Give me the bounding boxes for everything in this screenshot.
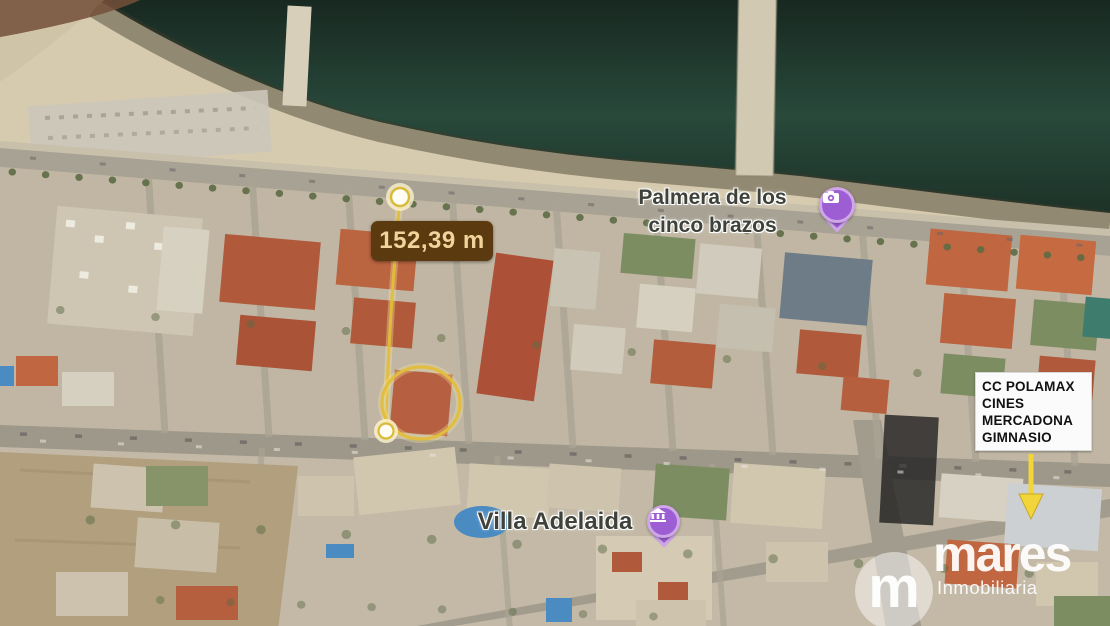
distance-value: 152,39 m xyxy=(379,227,484,255)
watermark-monogram: m xyxy=(868,559,920,617)
historic-building-icon xyxy=(650,508,666,522)
watermark-logo-circle: m xyxy=(855,552,933,626)
camera-icon xyxy=(822,190,840,204)
landmark-pin[interactable] xyxy=(647,505,680,538)
map-canvas[interactable]: 152,39 m Palmera de los cinco brazos Vil… xyxy=(0,0,1110,626)
photo-spot-pin[interactable] xyxy=(819,187,855,223)
place-label-palmera: Palmera de los cinco brazos xyxy=(600,184,825,240)
distance-label: 152,39 m xyxy=(371,221,493,261)
info-line-4: GIMNASIO xyxy=(982,429,1085,446)
villa-name: Villa Adelaida xyxy=(478,508,633,535)
info-line-2: CINES xyxy=(982,395,1085,412)
poi-info-box: CC POLAMAX CINES MERCADONA GIMNASIO xyxy=(975,372,1092,451)
info-line-1: CC POLAMAX xyxy=(982,378,1085,395)
measure-end-marker[interactable] xyxy=(374,419,398,443)
watermark-tagline: Inmobiliaria xyxy=(937,577,1038,599)
info-line-3: MERCADONA xyxy=(982,412,1085,429)
pointer-arrow xyxy=(1019,454,1043,519)
place-label-villa: Villa Adelaida xyxy=(455,508,655,536)
palmera-line1: Palmera de los xyxy=(600,184,825,212)
watermark-brand-name: mares xyxy=(933,525,1070,583)
palmera-line2: cinco brazos xyxy=(600,212,825,240)
measure-start-marker[interactable] xyxy=(386,183,414,211)
